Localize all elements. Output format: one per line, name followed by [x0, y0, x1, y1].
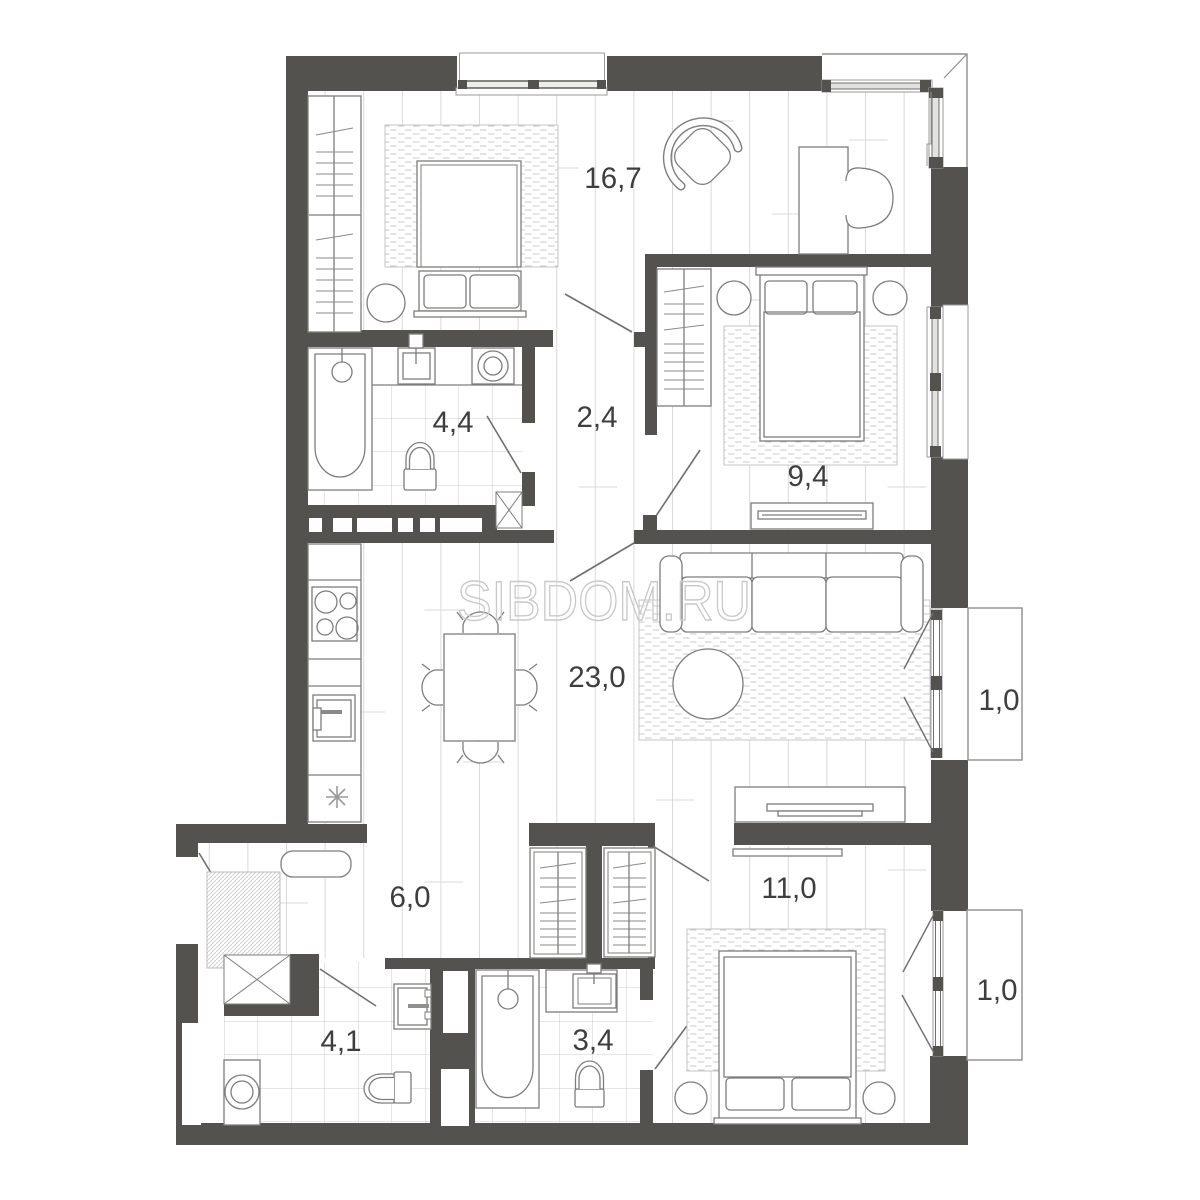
svg-text:4,4: 4,4 [432, 406, 473, 439]
svg-text:6,0: 6,0 [389, 881, 430, 914]
svg-text:1,0: 1,0 [978, 684, 1019, 717]
svg-text:9,4: 9,4 [787, 460, 828, 493]
svg-text:1,0: 1,0 [976, 974, 1017, 1007]
svg-text:2,4: 2,4 [576, 401, 617, 434]
svg-text:11,0: 11,0 [761, 872, 816, 905]
svg-text:SIBDOM.RU: SIBDOM.RU [457, 569, 751, 632]
svg-text:4,1: 4,1 [320, 1025, 361, 1058]
svg-text:16,7: 16,7 [584, 162, 641, 195]
svg-text:3,4: 3,4 [572, 1024, 613, 1057]
svg-text:23,0: 23,0 [568, 661, 625, 694]
